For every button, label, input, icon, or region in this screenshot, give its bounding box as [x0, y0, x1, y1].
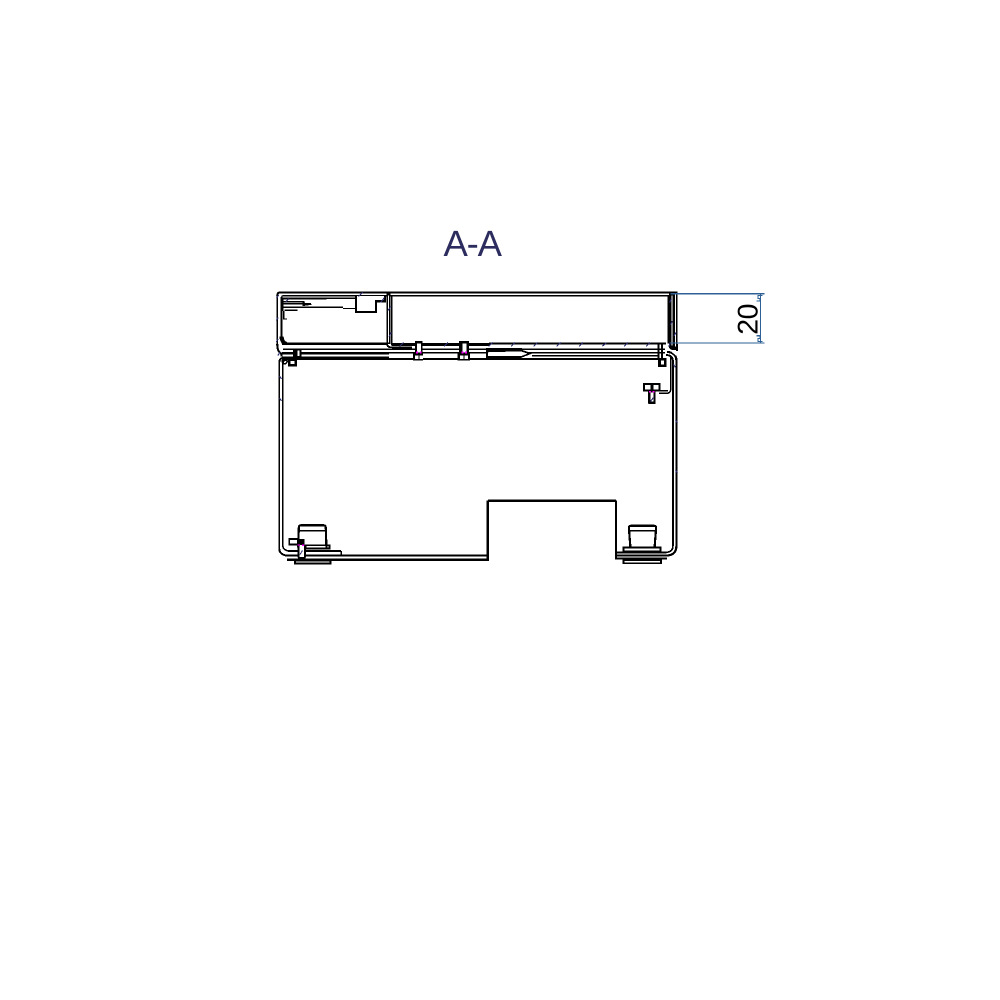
- svg-text:20: 20: [733, 304, 765, 335]
- svg-text:A-A: A-A: [444, 223, 503, 264]
